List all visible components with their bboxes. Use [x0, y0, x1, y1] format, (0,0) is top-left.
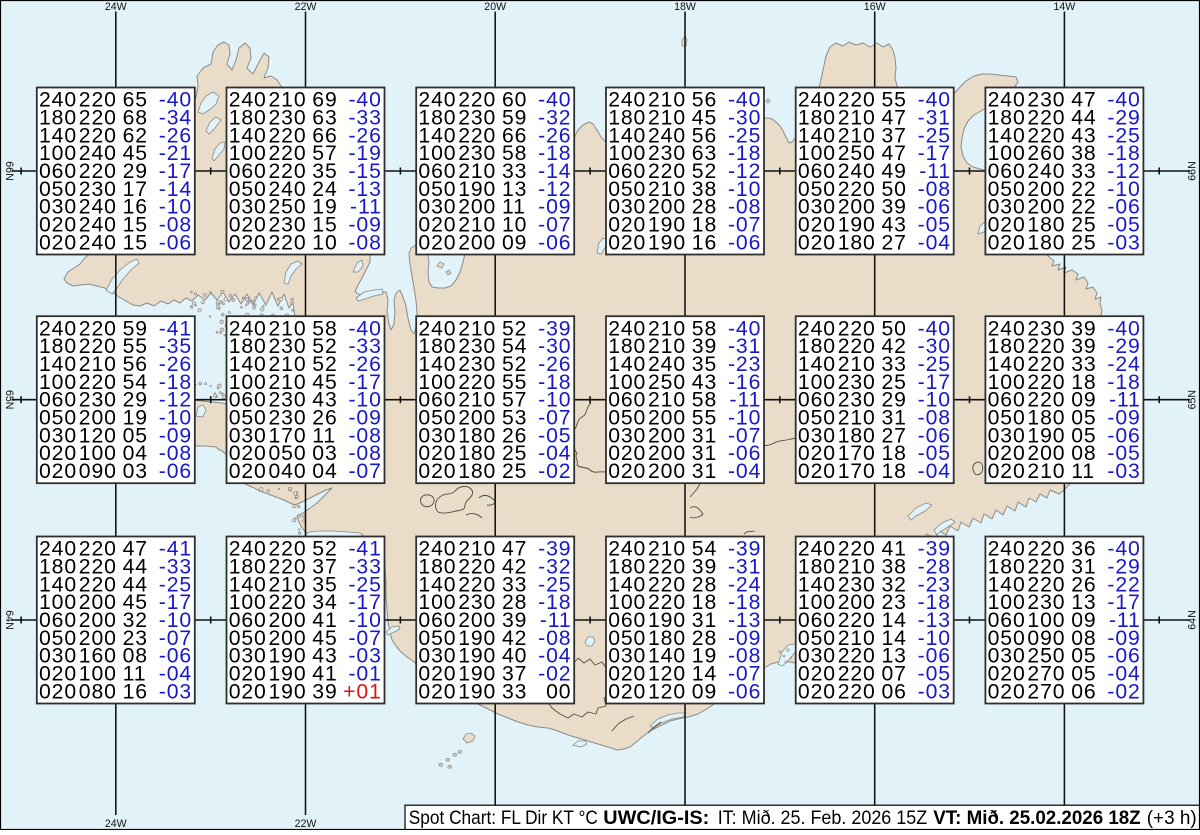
svg-text:24W: 24W	[105, 1, 127, 13]
svg-text:02022010: 02022010	[229, 231, 338, 254]
svg-text:-04: -04	[918, 460, 951, 483]
svg-text:02018025: 02018025	[988, 231, 1097, 254]
svg-text:18W: 18W	[674, 1, 696, 13]
svg-text:22W: 22W	[295, 818, 317, 830]
svg-text:02008016: 02008016	[39, 680, 148, 703]
svg-text:-03: -03	[1107, 231, 1140, 254]
svg-text:02019016: 02019016	[608, 231, 717, 254]
svg-text:Spot Chart: FL Dir KT °C: Spot Chart: FL Dir KT °C	[409, 806, 598, 828]
svg-text:UWC/IG-IS:: UWC/IG-IS:	[603, 807, 709, 829]
svg-text:-06: -06	[728, 231, 761, 254]
svg-text:02018027: 02018027	[798, 231, 907, 254]
svg-text:+01: +01	[343, 680, 382, 703]
svg-text:02027006: 02027006	[988, 680, 1097, 703]
svg-text:02019039: 02019039	[229, 680, 338, 703]
svg-text:02021011: 02021011	[988, 460, 1095, 483]
svg-text:IT: Mið. 25. Feb. 2026 15Z: IT: Mið. 25. Feb. 2026 15Z	[718, 807, 928, 829]
svg-text:24W: 24W	[105, 818, 127, 830]
svg-text:-03: -03	[159, 680, 192, 703]
svg-text:02004004: 02004004	[229, 460, 338, 483]
svg-text:02020031: 02020031	[608, 460, 717, 483]
svg-text:02017018: 02017018	[798, 460, 907, 483]
svg-text:02009003: 02009003	[39, 460, 148, 483]
svg-text:(+3 h): (+3 h)	[1147, 808, 1197, 829]
svg-text:02019033: 02019033	[418, 680, 527, 703]
svg-text:02018025: 02018025	[418, 460, 527, 483]
svg-text:-08: -08	[348, 231, 381, 254]
svg-text:65N: 65N	[1187, 390, 1199, 409]
svg-text:66N: 66N	[3, 161, 15, 180]
svg-text:02020009: 02020009	[418, 231, 527, 254]
svg-text:-07: -07	[348, 460, 381, 483]
svg-text:64N: 64N	[1187, 610, 1199, 629]
svg-text:-06: -06	[538, 231, 571, 254]
svg-text:66N: 66N	[1187, 161, 1199, 180]
svg-text:-03: -03	[1107, 460, 1140, 483]
svg-text:-02: -02	[538, 460, 571, 483]
svg-text:02024015: 02024015	[39, 231, 148, 254]
svg-text:65N: 65N	[3, 390, 15, 409]
svg-text:14W: 14W	[1054, 1, 1076, 13]
svg-text:-06: -06	[728, 680, 761, 703]
svg-text:16W: 16W	[864, 1, 886, 13]
svg-text:64N: 64N	[3, 610, 15, 629]
svg-text:20W: 20W	[484, 1, 506, 13]
svg-text:-06: -06	[159, 460, 192, 483]
svg-text:-04: -04	[918, 231, 951, 254]
svg-text:-02: -02	[1107, 680, 1140, 703]
svg-text:22W: 22W	[295, 1, 317, 13]
svg-text:VT: Mið. 25.02.2026 18Z: VT: Mið. 25.02.2026 18Z	[933, 808, 1141, 829]
svg-text:02012009: 02012009	[608, 680, 717, 703]
svg-text:-03: -03	[918, 680, 951, 703]
svg-text:00: 00	[546, 680, 571, 703]
svg-text:02022006: 02022006	[798, 680, 907, 703]
svg-text:-04: -04	[728, 460, 761, 483]
svg-text:-06: -06	[159, 231, 192, 254]
